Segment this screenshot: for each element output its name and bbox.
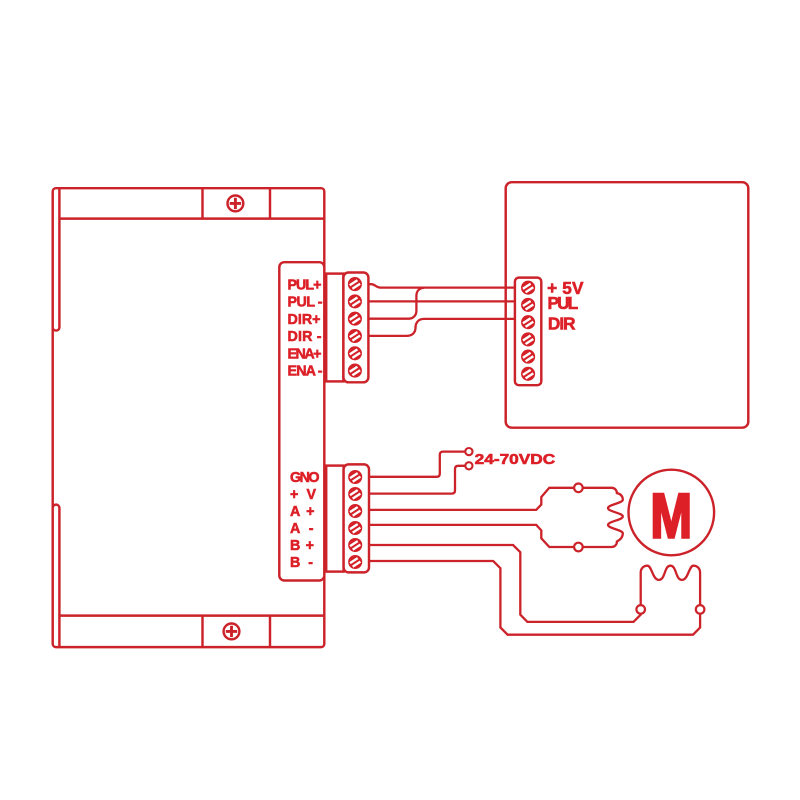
svg-text:B +: B + [290,538,314,554]
svg-text:A -: A - [290,521,314,537]
svg-text:ENA -: ENA - [288,364,323,380]
svg-text:PUL: PUL [548,293,579,313]
svg-text:GNO: GNO [290,470,320,486]
svg-text:ENA+: ENA+ [288,346,322,362]
svg-text:M: M [650,481,692,551]
svg-text:PUL+: PUL+ [288,277,322,293]
svg-text:DIR: DIR [548,314,576,334]
svg-text:+ V: + V [290,487,316,503]
svg-text:DIR+: DIR+ [288,312,321,328]
svg-text:B -: B - [290,555,313,571]
svg-text:24-70VDC: 24-70VDC [475,452,556,468]
svg-text:PUL -: PUL - [288,295,323,311]
svg-text:DIR -: DIR - [288,329,322,345]
